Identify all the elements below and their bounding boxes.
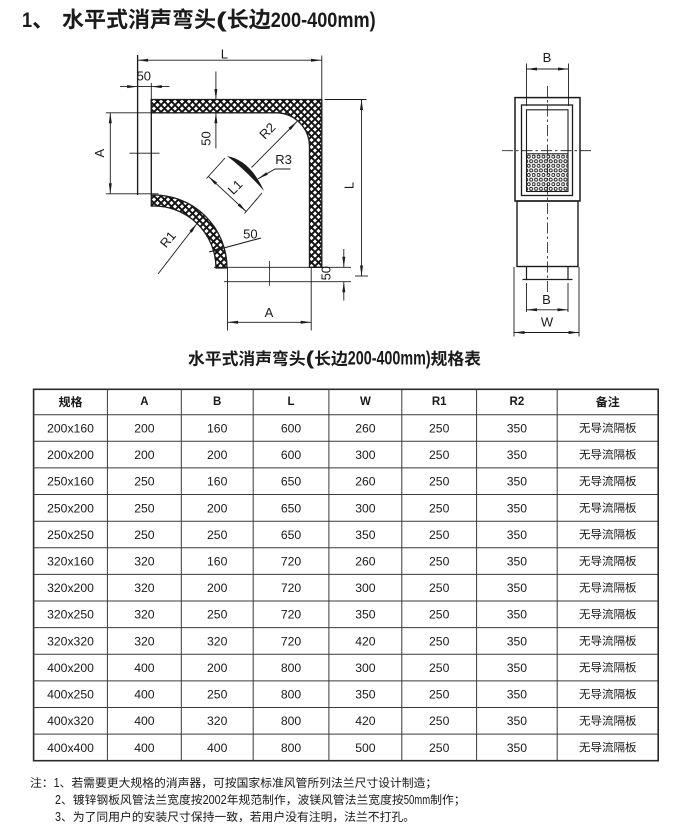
svg-text:200: 200 xyxy=(207,501,228,515)
svg-text:350: 350 xyxy=(507,741,528,755)
svg-text:350: 350 xyxy=(507,555,528,569)
svg-text:(: ( xyxy=(216,8,228,32)
svg-text:200: 200 xyxy=(207,581,228,595)
svg-text:250: 250 xyxy=(207,688,228,702)
svg-text:400x400: 400x400 xyxy=(47,741,94,755)
svg-text:200-400mm): 200-400mm) xyxy=(348,349,431,370)
svg-text:250x250: 250x250 xyxy=(47,528,94,542)
svg-text:200x200: 200x200 xyxy=(47,448,94,462)
svg-text:(: ( xyxy=(306,349,316,370)
svg-text:350: 350 xyxy=(507,608,528,622)
svg-text:250: 250 xyxy=(429,714,450,728)
svg-text:300: 300 xyxy=(355,501,376,515)
svg-text:400: 400 xyxy=(134,688,155,702)
svg-text:250: 250 xyxy=(134,501,155,515)
svg-text:350: 350 xyxy=(507,475,528,489)
svg-text:250: 250 xyxy=(429,501,450,515)
svg-text:250: 250 xyxy=(429,741,450,755)
svg-text:350: 350 xyxy=(355,528,376,542)
svg-text:B: B xyxy=(543,50,552,65)
svg-text:1: 1 xyxy=(22,8,32,32)
svg-text:350: 350 xyxy=(507,634,528,648)
svg-text:320x320: 320x320 xyxy=(47,634,94,648)
svg-text:R3: R3 xyxy=(275,152,292,167)
svg-text:350: 350 xyxy=(355,608,376,622)
svg-text:250: 250 xyxy=(207,608,228,622)
svg-text:250: 250 xyxy=(429,421,450,435)
svg-text:250: 250 xyxy=(207,528,228,542)
svg-text:260: 260 xyxy=(355,475,376,489)
svg-text:300: 300 xyxy=(355,448,376,462)
svg-text:160: 160 xyxy=(207,475,228,489)
svg-text:400: 400 xyxy=(134,661,155,675)
svg-text:160: 160 xyxy=(207,555,228,569)
svg-text:320: 320 xyxy=(134,555,155,569)
svg-text:650: 650 xyxy=(281,475,302,489)
svg-text:400x250: 400x250 xyxy=(47,688,94,702)
svg-text:400: 400 xyxy=(134,714,155,728)
svg-text:720: 720 xyxy=(281,555,302,569)
svg-text:A: A xyxy=(92,149,107,158)
svg-text:L: L xyxy=(287,396,294,408)
svg-text:800: 800 xyxy=(281,688,302,702)
svg-text:L: L xyxy=(221,46,228,61)
svg-text:250: 250 xyxy=(429,475,450,489)
svg-text:50: 50 xyxy=(319,266,334,280)
svg-text:350: 350 xyxy=(507,714,528,728)
svg-text:200-400mm): 200-400mm) xyxy=(271,8,376,32)
svg-text:50: 50 xyxy=(198,131,213,145)
svg-text:350: 350 xyxy=(507,661,528,675)
svg-text:250: 250 xyxy=(134,528,155,542)
svg-text:300: 300 xyxy=(355,581,376,595)
svg-text:200: 200 xyxy=(134,421,155,435)
svg-text:800: 800 xyxy=(281,714,302,728)
svg-text:3: 3 xyxy=(55,809,61,824)
svg-text:500: 500 xyxy=(355,741,376,755)
svg-text:320x250: 320x250 xyxy=(47,608,94,622)
svg-text:A: A xyxy=(140,396,148,408)
svg-text:R1: R1 xyxy=(432,396,447,408)
svg-text:200: 200 xyxy=(207,661,228,675)
svg-text:A: A xyxy=(265,305,274,320)
svg-text:720: 720 xyxy=(281,634,302,648)
svg-text:400: 400 xyxy=(207,741,228,755)
svg-text:250: 250 xyxy=(429,688,450,702)
svg-text:B: B xyxy=(213,396,221,408)
svg-text:200: 200 xyxy=(134,448,155,462)
svg-text:250: 250 xyxy=(429,528,450,542)
svg-text:250: 250 xyxy=(429,608,450,622)
svg-text:260: 260 xyxy=(355,421,376,435)
svg-text:650: 650 xyxy=(281,501,302,515)
svg-text:320: 320 xyxy=(134,634,155,648)
svg-text:320: 320 xyxy=(207,714,228,728)
svg-text:420: 420 xyxy=(355,714,376,728)
svg-text:L: L xyxy=(342,182,357,189)
svg-text:2002: 2002 xyxy=(203,792,227,807)
svg-text:800: 800 xyxy=(281,741,302,755)
svg-text:400x200: 400x200 xyxy=(47,661,94,675)
svg-text:350: 350 xyxy=(507,421,528,435)
svg-text:720: 720 xyxy=(281,608,302,622)
svg-text:R2: R2 xyxy=(510,396,525,408)
svg-text:800: 800 xyxy=(281,661,302,675)
svg-text:600: 600 xyxy=(281,448,302,462)
svg-text:320: 320 xyxy=(134,581,155,595)
svg-text:420: 420 xyxy=(355,634,376,648)
svg-text:50: 50 xyxy=(243,227,257,242)
svg-text:320x200: 320x200 xyxy=(47,581,94,595)
svg-text:W: W xyxy=(360,396,371,408)
svg-text:320x160: 320x160 xyxy=(47,555,94,569)
svg-text:300: 300 xyxy=(355,661,376,675)
svg-text:160: 160 xyxy=(207,421,228,435)
svg-text:400: 400 xyxy=(134,741,155,755)
svg-text:1: 1 xyxy=(54,775,60,790)
svg-text:50: 50 xyxy=(137,69,151,84)
svg-text:400x320: 400x320 xyxy=(47,714,94,728)
svg-text:720: 720 xyxy=(281,581,302,595)
svg-text:200x160: 200x160 xyxy=(47,421,94,435)
svg-text:250: 250 xyxy=(429,448,450,462)
svg-text:250: 250 xyxy=(429,581,450,595)
svg-text:260: 260 xyxy=(355,555,376,569)
svg-text:320: 320 xyxy=(207,634,228,648)
svg-text:250: 250 xyxy=(429,661,450,675)
svg-text:250x160: 250x160 xyxy=(47,475,94,489)
svg-text:250: 250 xyxy=(134,475,155,489)
svg-text:B: B xyxy=(542,292,551,307)
svg-text:250x200: 250x200 xyxy=(47,501,94,515)
svg-text:2: 2 xyxy=(55,792,61,807)
svg-text:350: 350 xyxy=(507,688,528,702)
svg-text:350: 350 xyxy=(507,448,528,462)
svg-text:250: 250 xyxy=(429,634,450,648)
svg-text:350: 350 xyxy=(507,581,528,595)
svg-text:600: 600 xyxy=(281,421,302,435)
svg-text:W: W xyxy=(541,315,554,330)
svg-text:650: 650 xyxy=(281,528,302,542)
svg-text:350: 350 xyxy=(507,501,528,515)
svg-text:320: 320 xyxy=(134,608,155,622)
svg-text:250: 250 xyxy=(429,555,450,569)
svg-text:350: 350 xyxy=(507,528,528,542)
svg-text:50mm: 50mm xyxy=(404,792,431,807)
svg-text:350: 350 xyxy=(355,688,376,702)
svg-text:200: 200 xyxy=(207,448,228,462)
